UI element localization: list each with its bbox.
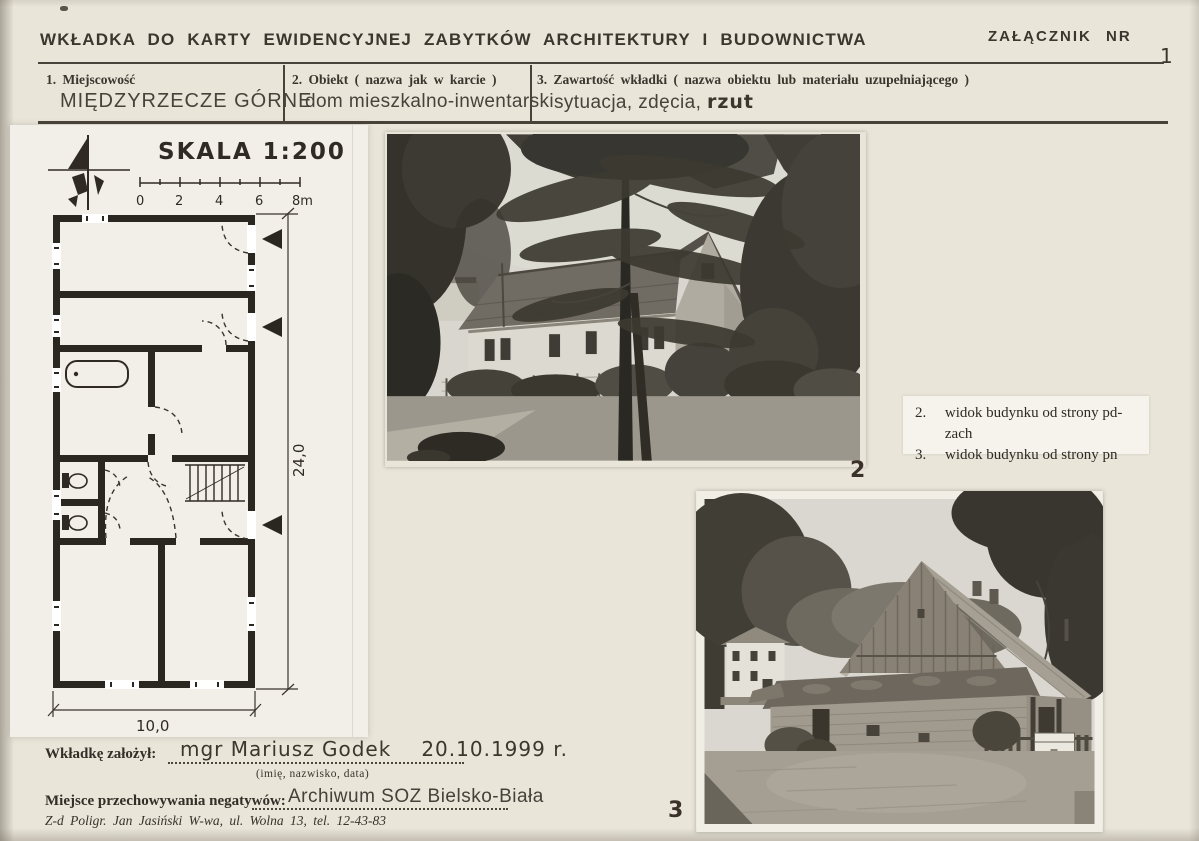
photo3-number: 3 <box>668 798 683 823</box>
staircase <box>185 465 245 501</box>
attachment-number: 1 <box>1160 44 1174 68</box>
fields-rule <box>38 121 1168 124</box>
negatives-dotted-line <box>252 808 508 810</box>
scale-bar <box>140 177 300 187</box>
founder-date: 20.10.1999 r. <box>421 737 568 761</box>
floor-plan-drawing: SKALA 1:200 0 2 4 6 8m <box>10 125 368 737</box>
bathtub <box>66 361 128 387</box>
printer-note: Z-d Poligr. Jan Jasiński W-wa, ul. Wolna… <box>45 813 386 829</box>
field-contents-label: 3. Zawartość wkładki ( nazwa obiektu lub… <box>537 72 969 88</box>
caption-2-number: 2. <box>915 403 945 445</box>
photo3-bush <box>973 711 1021 751</box>
scale-tick-2: 2 <box>175 194 183 209</box>
scale-tick-0: 0 <box>136 194 144 209</box>
dimension-width-label: 10,0 <box>136 717 169 735</box>
floor-plan-sheet: SKALA 1:200 0 2 4 6 8m <box>10 125 368 737</box>
field-contents-value: sytuacja, zdęcia, rzut <box>554 91 754 114</box>
caption-row-2: 2. widok budynku od strony pd-zach <box>915 403 1149 445</box>
founder-name: mgr Mariusz Godek <box>180 737 391 761</box>
scale-tick-4: 4 <box>215 194 223 209</box>
negatives-value: Archiwum SOZ Bielsko-Biała <box>288 786 544 808</box>
photo3-image <box>696 491 1103 832</box>
plan-scale-label: SKALA 1:200 <box>158 139 346 165</box>
photo-house-sw <box>385 132 866 467</box>
negatives-label: Miejsce przechowywania negatywów: <box>45 793 286 810</box>
photo2-number: 2 <box>850 458 865 483</box>
photo-house-n <box>696 491 1103 832</box>
field-contents-typed: sytuacja, zdęcia, <box>554 92 701 113</box>
page-title: WKŁADKA DO KARTY EWIDENCYJNEJ ZABYTKÓW A… <box>40 30 867 50</box>
founder-hint: (imię, nazwisko, data) <box>256 768 369 780</box>
scale-tick-8: 8m <box>292 194 313 209</box>
interior-walls <box>60 291 248 681</box>
paper-crease <box>352 125 353 737</box>
entrance-arrow-icons <box>262 229 282 535</box>
caption-3-number: 3. <box>915 445 945 466</box>
field-locality-value: MIĘDZYRZECZE GÓRNE <box>60 90 312 113</box>
scale-tick-6: 6 <box>255 194 263 209</box>
photo2-image <box>387 134 860 461</box>
founder-value: mgr Mariusz Godek 20.10.1999 r. <box>180 737 568 761</box>
caption-3-text: widok budynku od strony pn <box>945 445 1118 466</box>
scan-speck <box>60 6 68 11</box>
caption-2-text: widok budynku od strony pd-zach <box>945 403 1149 445</box>
photo-captions: 2. widok budynku od strony pd-zach 3. wi… <box>903 396 1149 454</box>
field-contents-handwritten: rzut <box>707 91 754 113</box>
founder-label: Wkładkę założył: <box>45 746 156 763</box>
attachment-label: ZAŁĄCZNIK NR <box>988 28 1132 45</box>
founder-dotted-line <box>168 762 464 764</box>
field-object-value: dom mieszkalno-inwentarski <box>305 91 554 113</box>
record-card-page: WKŁADKA DO KARTY EWIDENCYJNEJ ZABYTKÓW A… <box>0 0 1199 841</box>
dimension-lines <box>48 208 298 717</box>
caption-row-3: 3. widok budynku od strony pn <box>915 445 1149 466</box>
north-arrow-icon <box>48 135 130 210</box>
header-rule <box>38 62 1164 64</box>
field-locality-label: 1. Miejscowość <box>46 72 135 88</box>
dimension-height-label: 24,0 <box>290 444 308 477</box>
field-object-label: 2. Obiekt ( nazwa jak w karcie ) <box>292 72 497 88</box>
